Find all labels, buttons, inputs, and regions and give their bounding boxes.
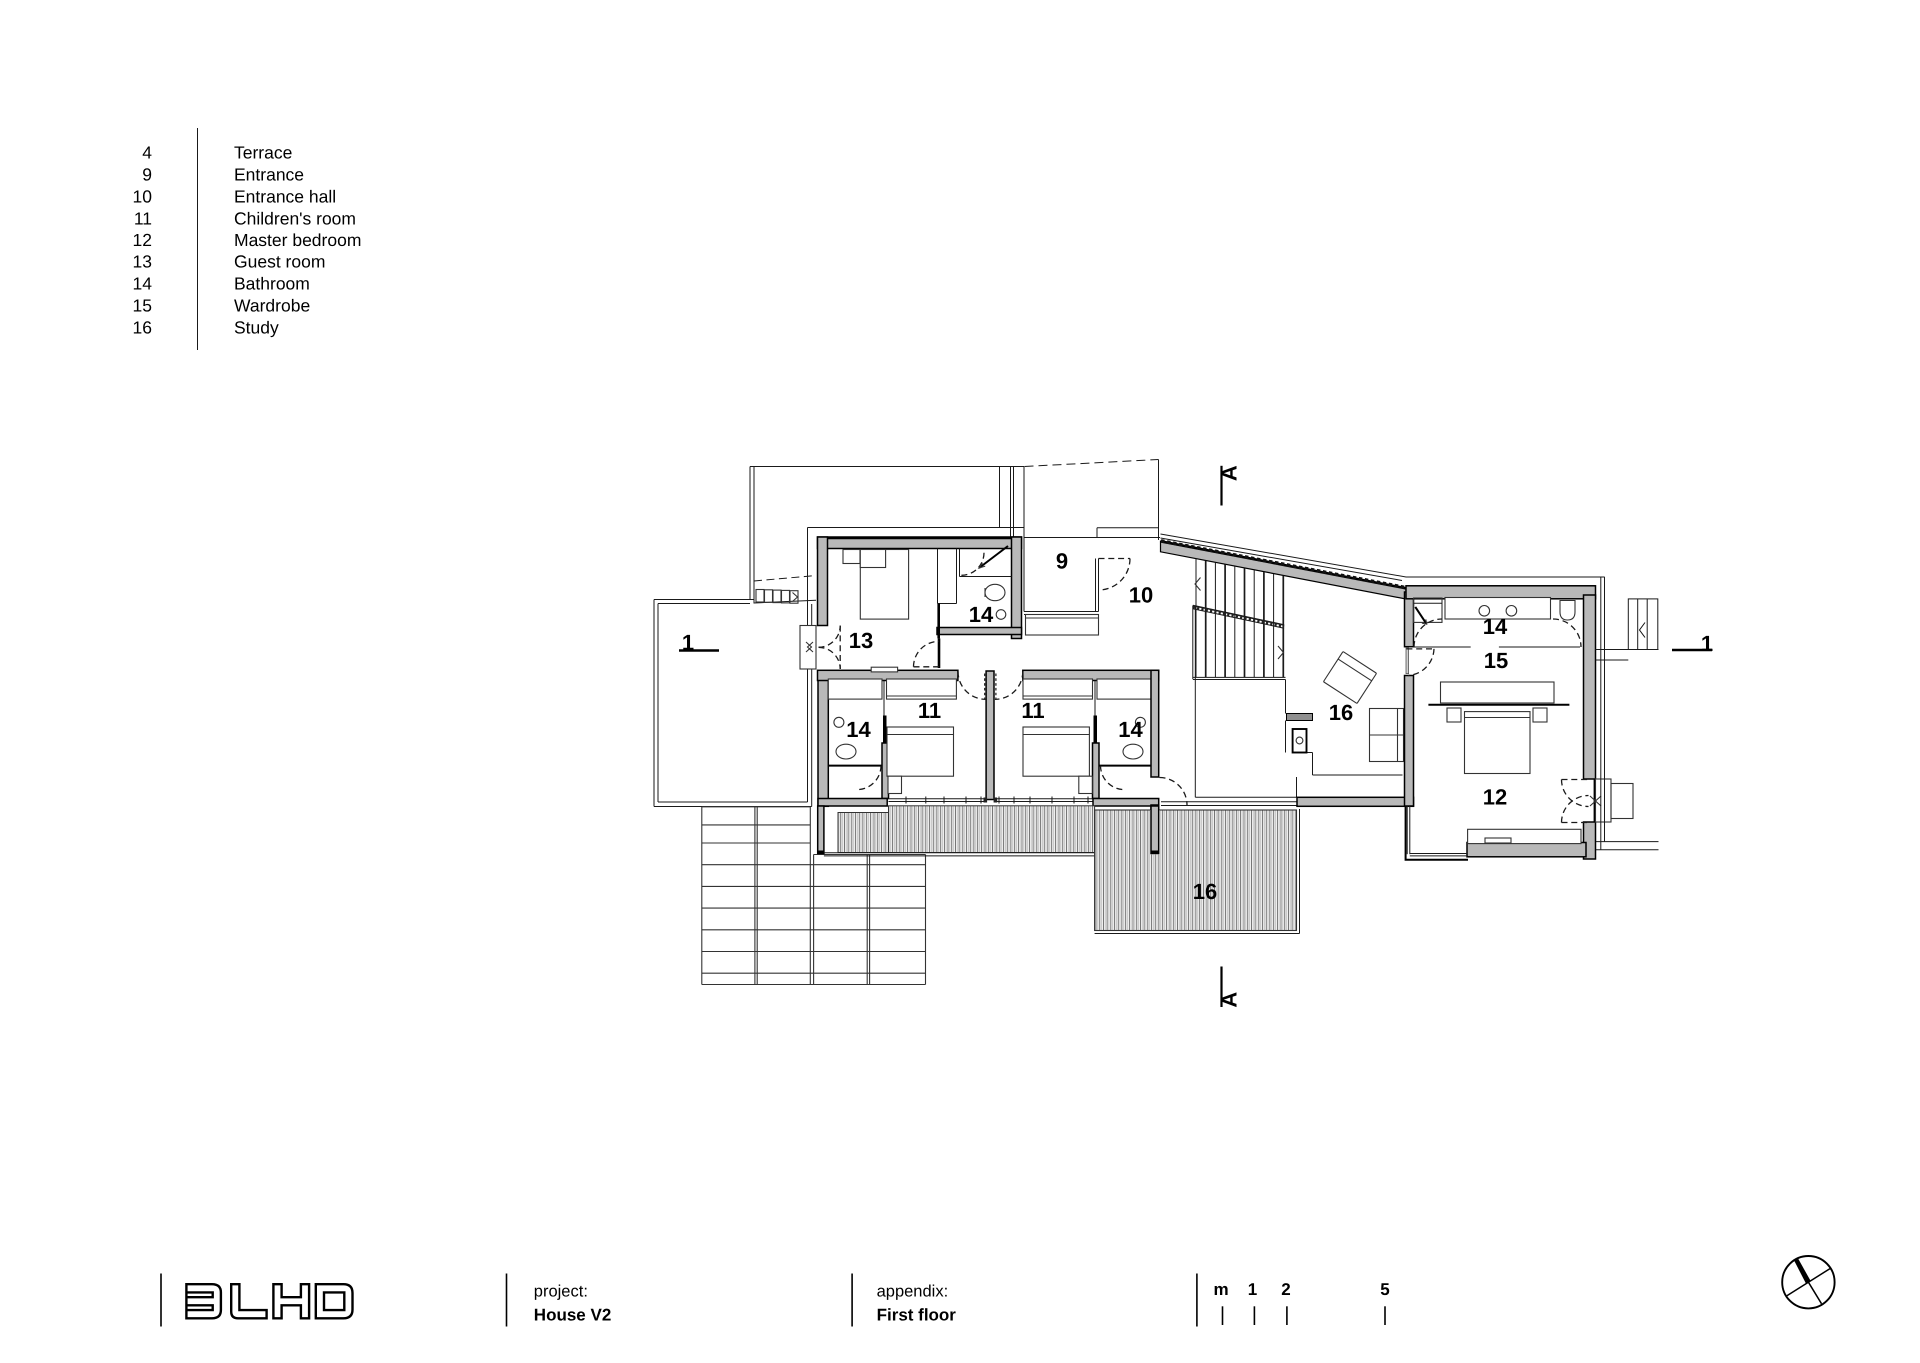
svg-text:14: 14 (133, 274, 153, 294)
svg-text:4: 4 (142, 143, 152, 163)
svg-text:16: 16 (1329, 700, 1353, 725)
svg-text:Guest room: Guest room (234, 252, 325, 272)
svg-text:16: 16 (1193, 879, 1217, 904)
svg-text:10: 10 (1129, 583, 1153, 608)
svg-text:Study: Study (234, 318, 279, 338)
svg-text:Wardrobe: Wardrobe (234, 296, 310, 316)
svg-text:project:: project: (534, 1283, 588, 1301)
svg-text:1: 1 (1248, 1280, 1257, 1299)
svg-text:1: 1 (1701, 631, 1713, 656)
svg-text:12: 12 (1483, 785, 1507, 810)
svg-text:14: 14 (1118, 717, 1143, 742)
svg-text:m: m (1213, 1280, 1228, 1299)
svg-text:Bathroom: Bathroom (234, 274, 310, 294)
svg-text:10: 10 (133, 187, 153, 207)
svg-text:appendix:: appendix: (877, 1283, 949, 1301)
svg-text:14: 14 (846, 717, 871, 742)
svg-text:11: 11 (1021, 698, 1044, 723)
svg-text:13: 13 (133, 252, 152, 272)
svg-text:A: A (1216, 465, 1241, 481)
svg-text:Entrance: Entrance (234, 165, 304, 185)
svg-text:2: 2 (1281, 1280, 1290, 1299)
svg-text:9: 9 (142, 165, 152, 185)
svg-text:12: 12 (133, 230, 152, 250)
svg-text:13: 13 (849, 628, 873, 653)
svg-text:Master bedroom: Master bedroom (234, 230, 361, 250)
svg-text:Entrance hall: Entrance hall (234, 187, 336, 207)
svg-text:Children's room: Children's room (234, 209, 356, 229)
svg-text:14: 14 (1483, 614, 1508, 639)
svg-text:Terrace: Terrace (234, 143, 292, 163)
svg-text:14: 14 (969, 602, 994, 627)
svg-text:11: 11 (134, 209, 152, 229)
svg-text:9: 9 (1056, 549, 1068, 574)
svg-text:First floor: First floor (877, 1306, 957, 1325)
svg-text:5: 5 (1380, 1280, 1389, 1299)
svg-text:16: 16 (133, 318, 152, 338)
svg-text:15: 15 (133, 296, 152, 316)
svg-text:A: A (1216, 992, 1241, 1008)
svg-text:11: 11 (918, 698, 941, 723)
svg-text:15: 15 (1484, 648, 1508, 673)
svg-text:House V2: House V2 (534, 1306, 611, 1325)
